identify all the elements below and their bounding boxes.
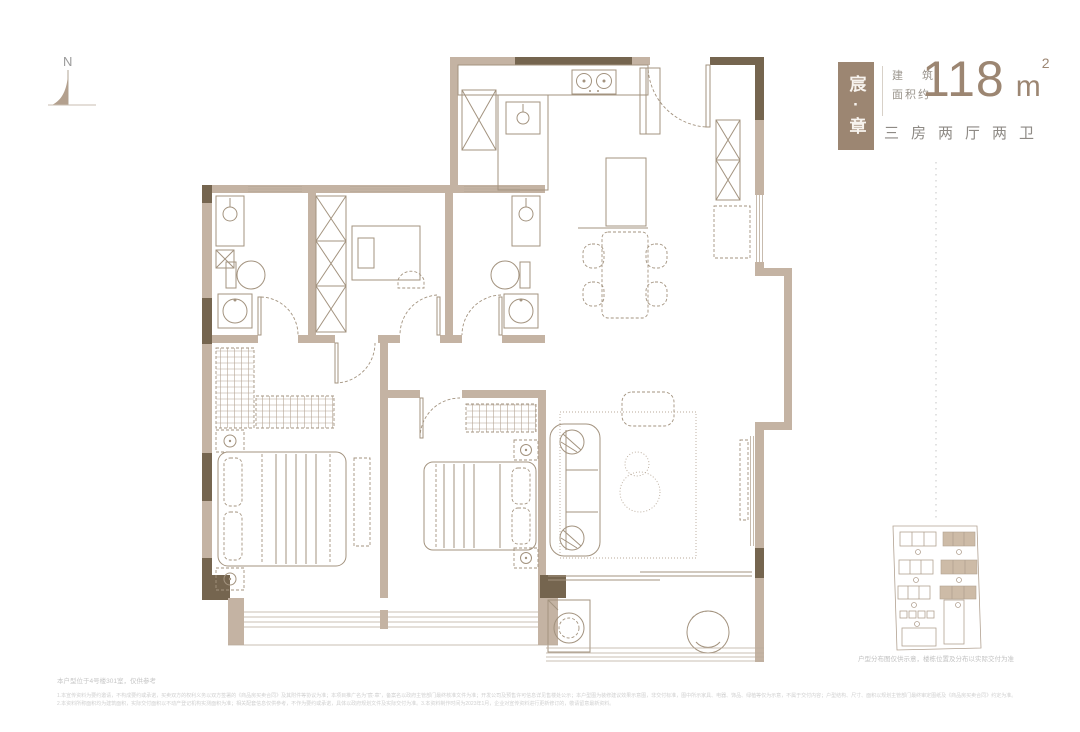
entry-door bbox=[648, 65, 710, 127]
tall-cabinet bbox=[716, 120, 740, 200]
balcony bbox=[546, 572, 764, 661]
area-exponent: 2 bbox=[1042, 55, 1051, 71]
bedroom-2 bbox=[420, 398, 538, 568]
building-block-highlighted bbox=[941, 560, 977, 583]
desk bbox=[352, 226, 424, 288]
kitchen-sink-icon bbox=[506, 102, 540, 134]
disclaimer-line-1: 1.本宣传资料为要约邀请，不构成要约或承诺，买卖双方的权利义务以双方签署的《商品… bbox=[57, 693, 1025, 700]
flue-shaft bbox=[462, 90, 496, 150]
floorplan-page: N bbox=[0, 0, 1080, 732]
pillow bbox=[512, 468, 530, 504]
vanity bbox=[216, 196, 244, 246]
master-door bbox=[335, 343, 375, 383]
study bbox=[316, 196, 440, 335]
building-block-highlighted bbox=[943, 532, 975, 555]
sliding-door bbox=[548, 572, 752, 580]
dining-chair bbox=[583, 282, 604, 306]
sofa bbox=[550, 424, 600, 556]
bedroom-bay-window bbox=[228, 610, 558, 645]
kitchen-island bbox=[606, 158, 646, 226]
master-wardrobe bbox=[216, 348, 334, 428]
study-door bbox=[400, 295, 440, 335]
disclaimer-line-2: 2.本资料所称面积均为建筑面积，实际交付面积以不动产登记机构实测面积为准；相关配… bbox=[57, 701, 1025, 708]
master-bedroom bbox=[216, 343, 375, 590]
north-arrow-icon: N bbox=[48, 54, 96, 105]
header-divider bbox=[882, 66, 883, 116]
toilet-icon bbox=[491, 261, 530, 289]
nightstand bbox=[216, 430, 244, 452]
dining-table bbox=[583, 232, 667, 318]
dining-chair bbox=[646, 244, 667, 268]
area-unit: m bbox=[1016, 70, 1042, 103]
dining-window bbox=[757, 195, 763, 262]
coffee-table bbox=[620, 452, 660, 512]
building-block bbox=[900, 532, 936, 555]
washbasin-icon bbox=[218, 294, 252, 328]
floor-drain bbox=[216, 250, 234, 268]
dining-chair bbox=[646, 282, 667, 306]
bed-2 bbox=[424, 462, 536, 550]
pillow bbox=[224, 512, 242, 560]
wardrobe-column bbox=[316, 196, 346, 332]
floor-plan-canvas: N bbox=[0, 0, 1080, 732]
bedroom-2-door bbox=[420, 398, 460, 438]
building-block-highlighted bbox=[940, 586, 976, 608]
bathroom-2-door bbox=[462, 295, 502, 335]
bathroom-1-door bbox=[258, 297, 298, 335]
walls bbox=[202, 57, 792, 662]
bathroom-1 bbox=[216, 196, 298, 335]
balcony-railing bbox=[546, 648, 764, 661]
site-map-caption: 户型分布图仅供示意，楼栋位置及分布以实际交付为准 bbox=[858, 653, 1078, 663]
master-bed bbox=[218, 452, 346, 566]
area-value: 118 m2 bbox=[922, 50, 1051, 108]
site-amenities bbox=[900, 600, 964, 646]
pillow bbox=[512, 508, 530, 544]
stove-icon bbox=[572, 70, 616, 94]
project-badge-label: 宸·章 bbox=[844, 75, 869, 137]
nightstand bbox=[514, 440, 538, 460]
armchair bbox=[622, 392, 674, 426]
bedroom-bench bbox=[354, 458, 370, 546]
living-window bbox=[751, 436, 754, 546]
pillow bbox=[224, 458, 242, 506]
site-map bbox=[893, 526, 981, 650]
north-label: N bbox=[63, 54, 72, 69]
unit-location-note: 本户型位于4号楼301室，仅供参考 bbox=[57, 675, 156, 685]
vanity bbox=[512, 196, 540, 246]
nightstand bbox=[514, 548, 538, 568]
dining-room bbox=[578, 65, 750, 318]
building-block bbox=[899, 560, 933, 583]
dining-chair bbox=[583, 244, 604, 268]
shoe-cabinet bbox=[640, 68, 660, 134]
sideboard bbox=[714, 206, 750, 258]
dresser bbox=[466, 404, 536, 432]
washbasin-icon bbox=[504, 294, 538, 328]
project-badge: 宸·章 bbox=[838, 62, 874, 150]
balcony-chair bbox=[687, 611, 729, 653]
kitchen bbox=[458, 65, 648, 190]
bathroom-2 bbox=[462, 196, 540, 335]
living-room bbox=[550, 392, 754, 558]
building-block bbox=[898, 586, 930, 608]
tv-console bbox=[740, 440, 748, 520]
layout-label: 三房两厅两卫 bbox=[884, 122, 1046, 143]
